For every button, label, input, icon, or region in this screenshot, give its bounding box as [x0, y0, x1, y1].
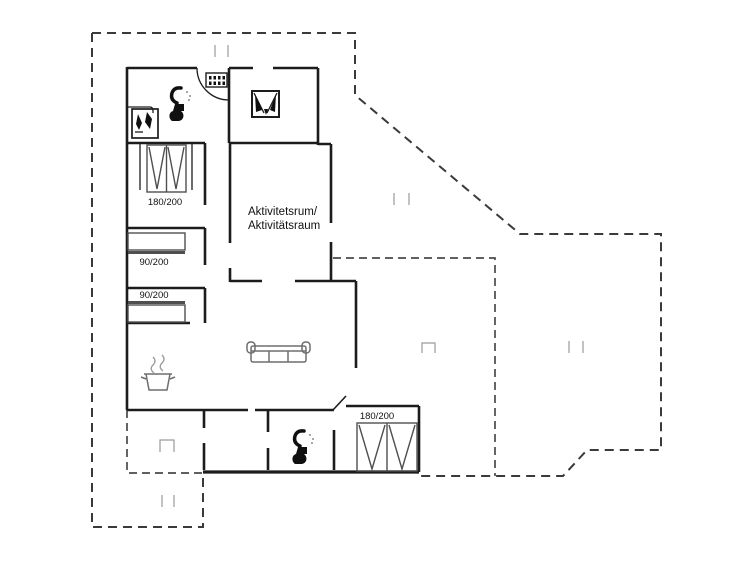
bed-double-top-left — [147, 145, 186, 192]
bed-double-bottom — [357, 423, 417, 471]
activity-room-label-line2: Aktivitätsraum — [248, 220, 320, 232]
floor-plan-drawing: Aktivitetsrum/ Aktivitätsraum 180/200 90… — [0, 0, 755, 566]
bed-size-label-bottom: 180/200 — [360, 411, 394, 422]
bedroom-door-leaf — [333, 396, 346, 410]
bed-size-label-single-upper: 90/200 — [139, 257, 168, 268]
shower-icon-bottom — [295, 431, 314, 446]
toilet-icon-top — [169, 104, 184, 121]
bed-size-label-top: 180/200 — [148, 197, 182, 208]
bed-single-lower — [128, 303, 185, 323]
shower-icon-top — [172, 88, 191, 103]
toilet-icon-bottom — [292, 447, 307, 464]
open-square-marker — [160, 343, 435, 452]
bed-single-upper — [128, 233, 185, 253]
cooking-pot-steam-icon — [141, 355, 175, 390]
activity-room-label-line1: Aktivitetsrum/ — [248, 206, 318, 218]
washing-machine-icon — [132, 109, 158, 138]
sofa-icon — [247, 342, 310, 362]
wood-burning-stove-icon — [252, 91, 279, 117]
floor-plan-canvas: Aktivitetsrum/ Aktivitätsraum 180/200 90… — [0, 0, 755, 566]
steps-tick-marks — [162, 45, 583, 507]
bed-size-label-single-lower: 90/200 — [139, 290, 168, 301]
dishwasher-icon — [206, 73, 227, 87]
